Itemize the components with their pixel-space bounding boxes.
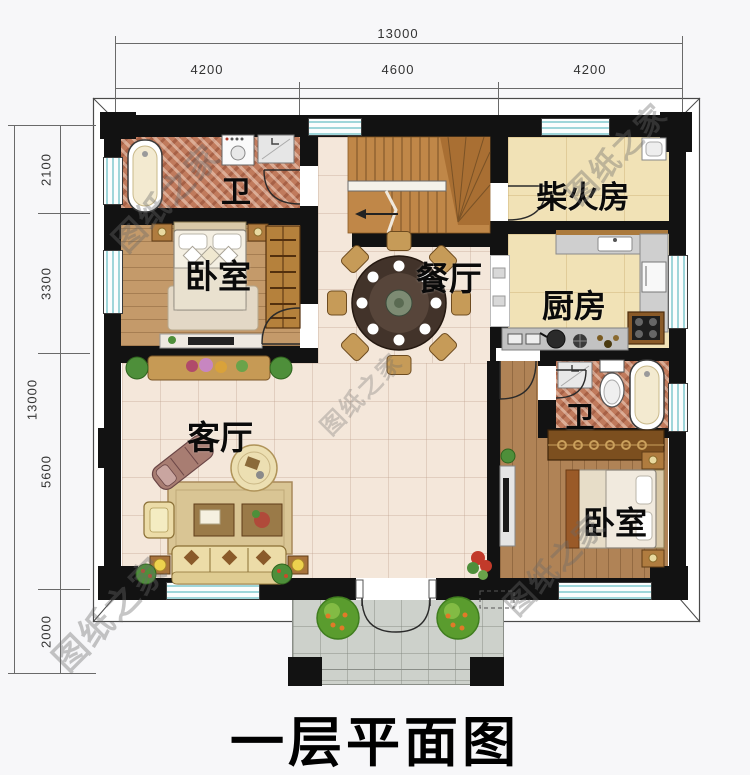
room-label-kitchen: 厨房	[509, 281, 639, 327]
plant-flower-red	[467, 551, 492, 580]
bathtub-2	[630, 360, 664, 430]
plan-title: 一层平面图	[0, 698, 750, 775]
room-label-living: 客厅	[155, 411, 285, 459]
lamp	[292, 559, 304, 571]
stair-handrail	[348, 181, 446, 191]
coffee-table-1	[194, 504, 234, 536]
bush-right	[437, 597, 479, 639]
sink-2	[558, 362, 592, 388]
room-label-dining: 餐厅	[384, 252, 514, 300]
shower-sink-1	[258, 135, 294, 163]
staircase	[348, 137, 490, 233]
tv-console-bedroom1	[160, 334, 262, 348]
door-arc-hallway	[500, 361, 536, 399]
room-label-bedroom1: 卧室	[153, 250, 283, 298]
armchair	[144, 502, 174, 538]
wok	[547, 330, 565, 348]
door-arc-entrance-left	[362, 598, 396, 632]
floor-plan-canvas: 13000 4200 4600 4200 13000 2100 3300 560…	[0, 0, 750, 775]
room-label-bath2: 卫	[550, 394, 610, 436]
bush-left	[317, 597, 359, 639]
kitchen-bottom-counter	[502, 328, 628, 350]
flower-console	[126, 356, 292, 380]
plant-living-right	[272, 564, 292, 584]
coffee-table-2	[242, 504, 282, 536]
hall-tv-console	[500, 449, 515, 546]
door-arc-entrance-right	[396, 598, 430, 632]
entrance-door-posts	[356, 580, 436, 598]
